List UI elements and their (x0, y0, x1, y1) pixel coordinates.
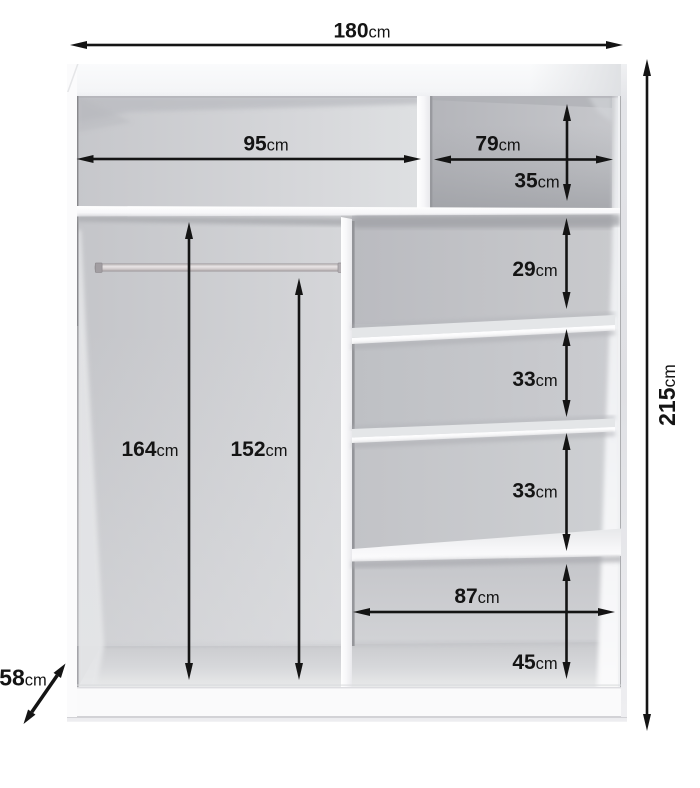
svg-text:33cm: 33cm (512, 480, 557, 503)
svg-text:79cm: 79cm (475, 133, 520, 156)
svg-text:33cm: 33cm (512, 368, 557, 391)
svg-text:180cm: 180cm (333, 20, 390, 43)
svg-text:152cm: 152cm (230, 438, 287, 461)
svg-text:35cm: 35cm (514, 170, 559, 193)
svg-text:164cm: 164cm (121, 438, 178, 461)
svg-text:87cm: 87cm (454, 585, 499, 608)
svg-text:29cm: 29cm (512, 258, 557, 281)
svg-text:95cm: 95cm (243, 133, 288, 156)
svg-text:45cm: 45cm (512, 651, 557, 674)
